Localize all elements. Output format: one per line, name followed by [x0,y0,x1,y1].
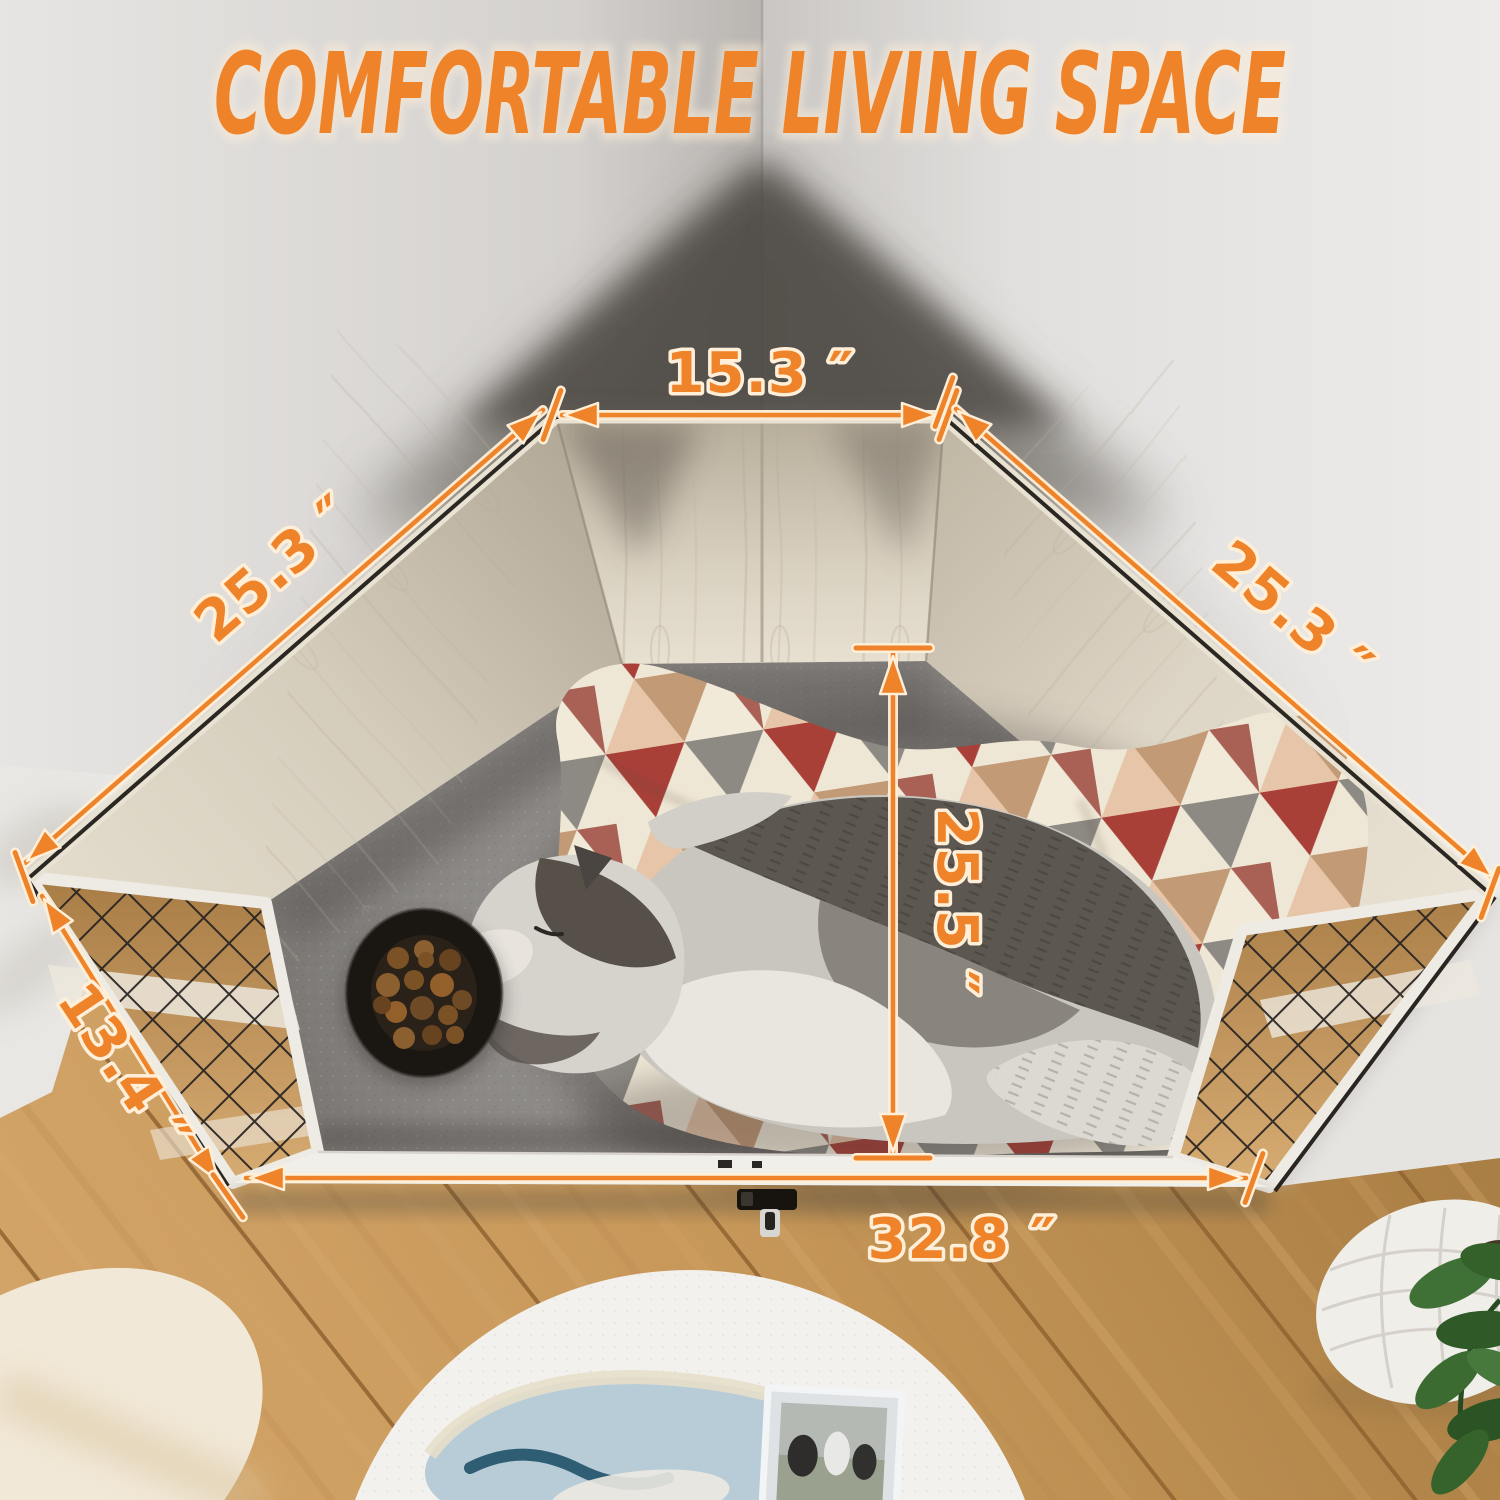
dimension-label: 32.8 ″ [868,1207,1057,1272]
crate-back-wall [556,417,944,664]
page-title: COMFORTABLE LIVING SPACE [214,30,1286,160]
headline: COMFORTABLE LIVING SPACE COMFORTABLE LIV… [214,30,1286,160]
dimension-label: 15.3 ″ [666,341,855,406]
product-image: 15.3 ″ 25.3 ″ 25.3 ″ 25.5 ″ 13.4 ″ [0,0,1500,1500]
annotated-product-scene: 15.3 ″ 25.3 ″ 25.3 ″ 25.5 ″ 13.4 ″ [0,0,1500,1500]
food-bowl [342,909,506,1086]
photo-frame [762,1388,902,1500]
dimension-label: 25.5 ″ [924,808,989,997]
